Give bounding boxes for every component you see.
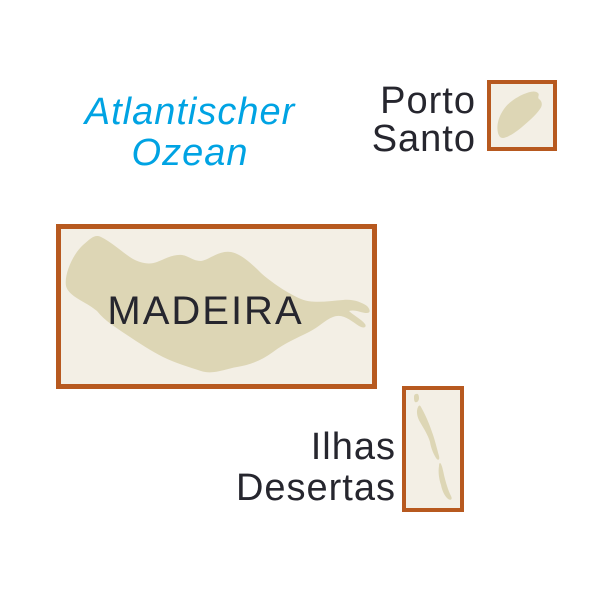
porto-santo-island-shape: [491, 84, 553, 147]
porto-santo-map-box: [487, 80, 557, 151]
ilhas-desertas-label: Ilhas Desertas: [150, 427, 396, 509]
deserta-grande-island-shape: [417, 406, 439, 460]
porto-santo-label-line-2: Santo: [200, 120, 476, 158]
overview-map: Atlantischer Ozean Porto Santo MADEIRA I…: [0, 0, 600, 600]
bugio-island-shape: [439, 463, 452, 500]
porto-santo-label-line-1: Porto: [200, 82, 476, 120]
ilheu-chao-islet-shape: [414, 394, 419, 403]
madeira-map-box: MADEIRA: [56, 224, 377, 389]
madeira-label: MADEIRA: [50, 291, 361, 331]
ilhas-desertas-islands-shape: [406, 390, 460, 508]
ilhas-desertas-label-line-1: Ilhas: [150, 427, 396, 468]
ilhas-desertas-map-box: [402, 386, 464, 512]
porto-santo-label: Porto Santo: [200, 82, 476, 158]
ilhas-desertas-label-line-2: Desertas: [150, 468, 396, 509]
